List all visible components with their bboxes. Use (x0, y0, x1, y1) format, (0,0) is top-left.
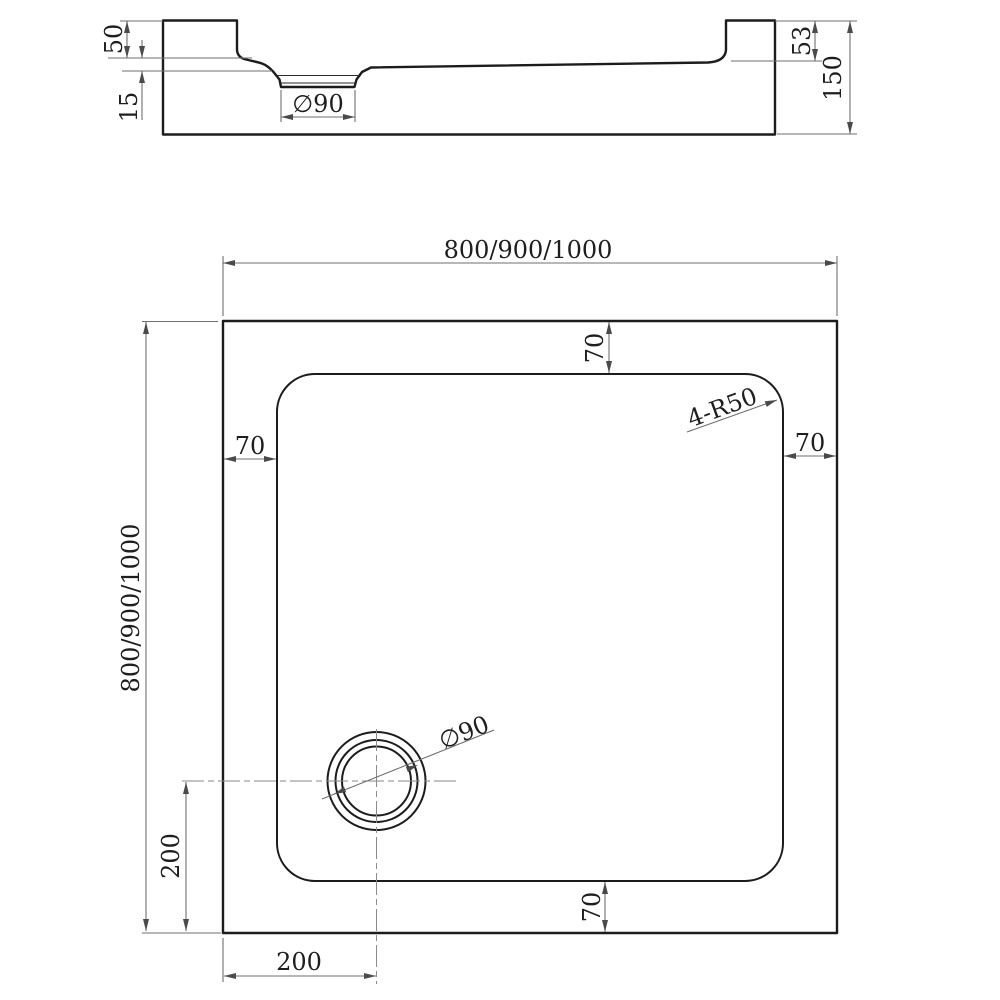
arrowhead (765, 400, 777, 407)
dim-label-drain-from-left: 200 (276, 948, 322, 976)
dim-section-floor-depth: 15 (115, 40, 272, 122)
dim-label-left-border: 70 (235, 432, 266, 460)
arrowhead (825, 260, 837, 266)
arrowhead (139, 46, 145, 58)
arrowhead (847, 122, 853, 134)
section-view: 50 15 ∅90 53 (100, 21, 857, 135)
section-profile-outline (163, 21, 775, 135)
dim-section-back-rim-height: 53 (731, 21, 857, 61)
dim-plan-drain-from-left: 200 (223, 938, 376, 982)
drawing-canvas: 50 15 ∅90 53 (0, 0, 1000, 1000)
dim-label-overall-width: 800/900/1000 (444, 236, 613, 264)
plan-view: 800/900/1000 800/900/1000 70 70 (117, 236, 837, 984)
dim-plan-right-border: 70 (784, 429, 836, 459)
arrowhead (281, 114, 293, 120)
dim-label-drain-diameter: ∅90 (292, 90, 343, 118)
arrowhead (139, 71, 145, 83)
dim-plan-overall-width: 800/900/1000 (223, 236, 837, 316)
leader-corner-radius: 4-R50 (684, 382, 777, 433)
dim-label-drain-from-bottom: 200 (157, 833, 185, 879)
dim-label-top-border: 70 (581, 333, 609, 364)
dim-label-overall-height: 150 (819, 55, 847, 101)
dim-label-bottom-border: 70 (578, 892, 606, 923)
dim-plan-left-border: 70 (224, 432, 276, 462)
dim-label-rim-height: 50 (100, 24, 128, 55)
arrowhead (343, 114, 355, 120)
dim-label-plan-drain-diameter: ∅90 (435, 710, 493, 755)
arrowhead (183, 919, 189, 931)
dim-label-floor-depth: 15 (115, 92, 143, 123)
arrowhead (264, 456, 276, 462)
arrowhead (183, 782, 189, 794)
dim-label-corner-radius: 4-R50 (684, 382, 761, 433)
dim-section-rim-height: 50 (100, 21, 252, 58)
arrowhead (223, 260, 235, 266)
dim-plan-top-border: 70 (581, 322, 612, 373)
dim-label-right-border: 70 (795, 429, 826, 457)
arrowhead (143, 322, 149, 334)
arrowhead (824, 453, 836, 459)
dim-plan-drain-from-bottom: 200 (157, 782, 189, 931)
dim-label-back-rim-height: 53 (788, 26, 816, 57)
arrowhead (364, 973, 376, 979)
arrowhead (224, 973, 236, 979)
dim-plan-bottom-border: 70 (578, 882, 608, 932)
arrowhead (143, 919, 149, 931)
dim-label-overall-depth: 800/900/1000 (117, 524, 145, 693)
dim-section-drain-diameter: ∅90 (281, 90, 355, 122)
arrowhead (847, 21, 853, 33)
shower-tray-technical-drawing: 50 15 ∅90 53 (0, 0, 1000, 1000)
arrowhead (606, 322, 612, 334)
